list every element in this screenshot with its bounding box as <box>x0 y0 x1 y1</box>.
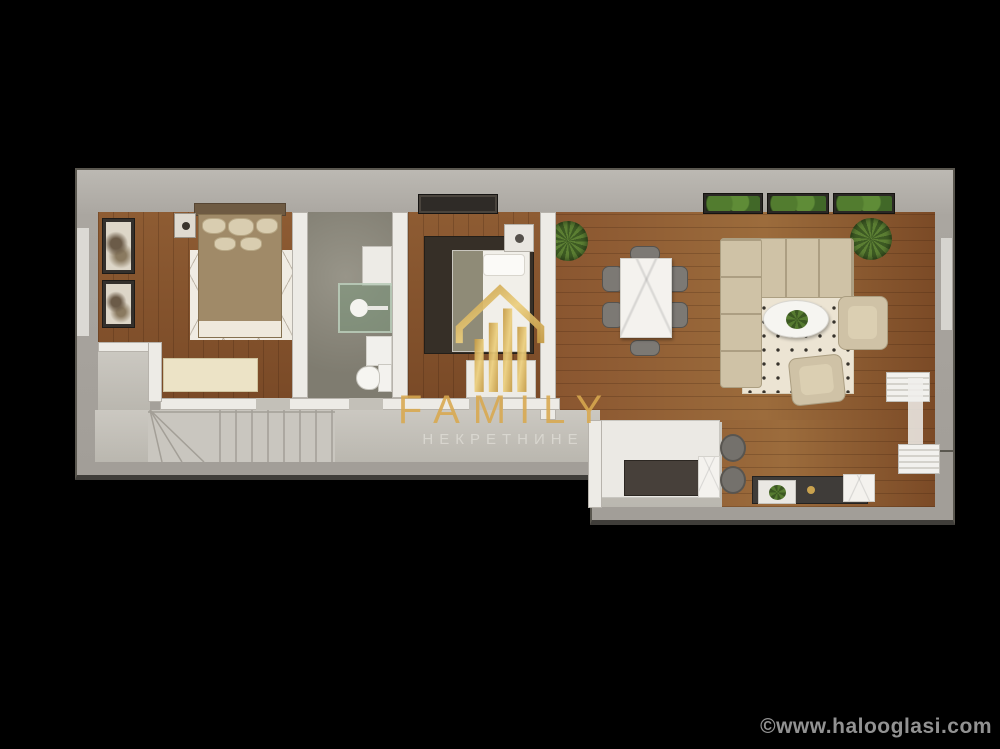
gold-house-columns-icon <box>448 282 552 394</box>
dining-chair <box>630 340 660 356</box>
wardrobe <box>418 194 498 214</box>
console-plant-box <box>758 480 796 504</box>
partition-wall <box>392 212 408 398</box>
bed-pillow <box>228 218 254 236</box>
bedroom-1-dresser <box>163 358 258 392</box>
oval-coffee-table <box>763 300 829 338</box>
door-opening <box>256 398 290 410</box>
kitchen-worktop <box>624 460 700 496</box>
bar-stool <box>720 466 746 494</box>
nightstand <box>504 224 534 252</box>
bar-stool <box>720 434 746 462</box>
wall-art-frame <box>102 218 135 274</box>
potted-plant <box>850 218 892 260</box>
window-planter <box>703 193 763 214</box>
closet-wall <box>98 342 150 352</box>
bath-mat <box>366 336 392 366</box>
bed-pillow <box>256 218 278 234</box>
radiator <box>898 444 940 474</box>
armchair <box>788 353 847 406</box>
table-plant <box>786 310 808 329</box>
window-left-wall <box>77 228 89 336</box>
watermark-subtitle: НЕКРЕТНИНЕ <box>390 431 610 448</box>
sectional-sofa-chaise <box>720 238 762 388</box>
glass-shower <box>338 283 392 333</box>
hallway-notch-floor <box>98 352 150 410</box>
closet-wall <box>148 342 162 402</box>
nightstand <box>174 213 196 238</box>
window-right-wall <box>941 238 952 330</box>
window-planter <box>833 193 895 214</box>
bathroom-vanity <box>362 246 392 286</box>
console-marble-box <box>843 474 875 502</box>
wall-art-frame <box>102 280 135 328</box>
copyright-text: ©www.halooglasi.com <box>760 715 992 739</box>
bed-pillow <box>202 218 226 234</box>
window-planter <box>767 193 829 214</box>
watermark-title: FAMILY <box>355 388 645 433</box>
armchair <box>838 296 888 350</box>
winder-staircase <box>148 410 335 462</box>
toilet-bowl <box>356 366 380 390</box>
bed-pillow <box>240 237 262 251</box>
partition-wall <box>292 212 308 398</box>
bed-pillow <box>214 237 236 251</box>
dining-table <box>620 258 672 338</box>
kitchen-counter-marble-end <box>698 456 720 498</box>
floor-plan-screenshot: FAMILY НЕКРЕТНИНЕ ©www.halooglasi.com <box>0 0 1000 749</box>
